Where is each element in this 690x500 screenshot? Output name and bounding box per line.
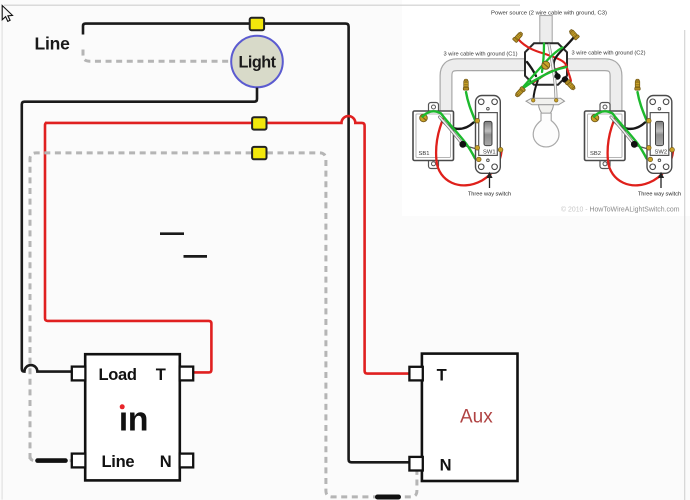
svg-text:N: N [440, 456, 452, 474]
svg-text:Three way switch: Three way switch [638, 192, 681, 198]
svg-text:T: T [437, 366, 447, 384]
svg-text:Line: Line [35, 33, 71, 53]
svg-text:SW1: SW1 [483, 150, 496, 156]
svg-text:3 wire cable with ground (C1): 3 wire cable with ground (C1) [444, 52, 518, 58]
svg-text:SB1: SB1 [419, 151, 430, 157]
svg-text:Aux: Aux [460, 406, 493, 427]
svg-text:Light: Light [238, 53, 276, 71]
svg-text:SB2: SB2 [590, 151, 601, 157]
svg-text:N: N [160, 453, 172, 471]
svg-text:Three way switch: Three way switch [468, 192, 511, 198]
svg-text:© 2010 - HowToWireALightSwitch: © 2010 - HowToWireALightSwitch.com [561, 205, 680, 213]
svg-text:SW2: SW2 [655, 150, 668, 156]
svg-text:T: T [156, 366, 166, 384]
svg-text:Load: Load [99, 366, 137, 384]
svg-text:3 wire cable with ground (C2): 3 wire cable with ground (C2) [572, 51, 646, 57]
svg-text:Line: Line [102, 453, 135, 471]
